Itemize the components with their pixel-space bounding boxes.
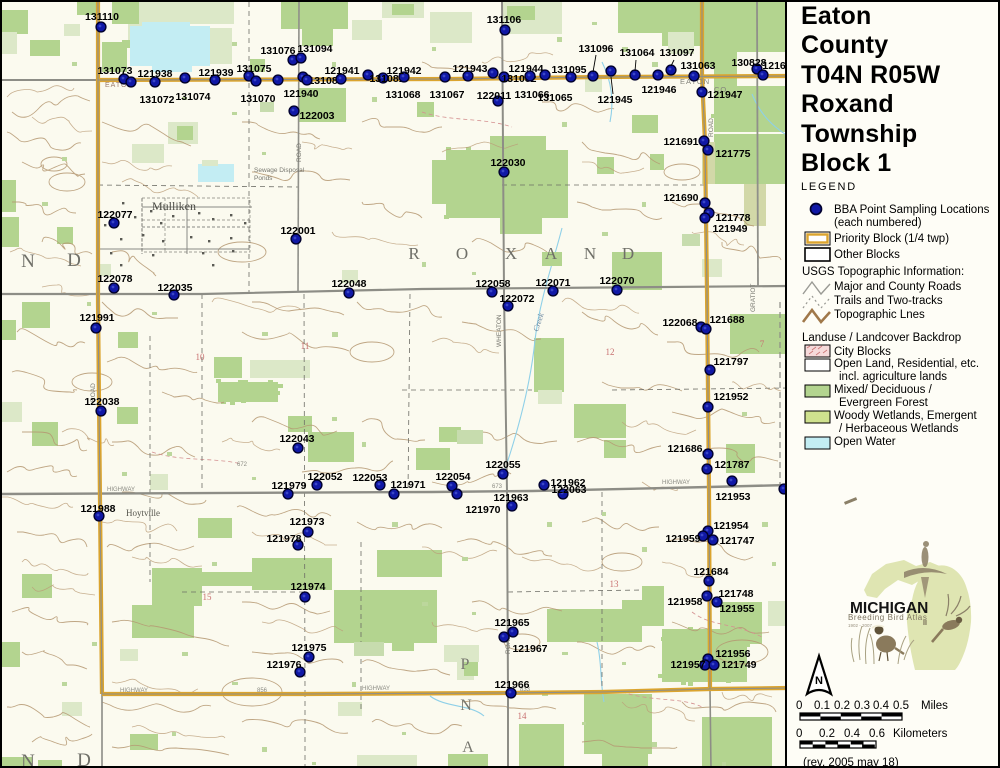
svg-text:121949: 121949 [712, 223, 747, 235]
svg-text:Evergreen Forest: Evergreen Forest [839, 397, 929, 409]
svg-text:N: N [815, 675, 823, 687]
svg-text:Other Blocks: Other Blocks [834, 249, 900, 261]
svg-text:673: 673 [492, 484, 503, 490]
svg-text:14: 14 [518, 711, 528, 721]
svg-text:D: D [622, 244, 634, 263]
svg-text:121775: 121775 [715, 148, 750, 160]
svg-text:A: A [545, 244, 558, 263]
svg-text:X: X [505, 244, 517, 263]
svg-text:Trails and Two-tracks: Trails and Two-tracks [834, 295, 943, 307]
svg-text:121955: 121955 [719, 603, 754, 615]
svg-text:Breeding Bird Atlas: Breeding Bird Atlas [848, 613, 927, 622]
svg-text:122078: 122078 [97, 273, 132, 285]
svg-text:D: D [77, 750, 91, 768]
svg-text:121684: 121684 [693, 566, 728, 578]
svg-text:122055: 122055 [485, 459, 520, 471]
svg-text:N: N [21, 251, 35, 272]
svg-text:131063: 131063 [680, 60, 715, 72]
svg-text:Major and County Roads: Major and County Roads [834, 281, 961, 293]
svg-text:Open Land, Residential, etc.: Open Land, Residential, etc. [834, 358, 979, 370]
svg-text:121947: 121947 [707, 89, 742, 101]
svg-text:131106: 131106 [487, 14, 522, 26]
svg-text:131096: 131096 [578, 43, 613, 55]
svg-text:131068: 131068 [385, 89, 420, 101]
svg-text:121970: 121970 [465, 504, 500, 516]
svg-text:121958: 121958 [667, 596, 702, 608]
svg-text:131067: 131067 [429, 89, 464, 101]
svg-text:122071: 122071 [535, 277, 570, 289]
svg-text:0.2: 0.2 [819, 728, 835, 740]
svg-text:121959: 121959 [665, 533, 700, 545]
svg-text:122077: 122077 [97, 209, 132, 221]
svg-text:0: 0 [796, 700, 802, 712]
svg-text:122054: 122054 [435, 471, 470, 483]
svg-text:D: D [67, 250, 81, 271]
svg-text:121978: 121978 [266, 533, 301, 545]
svg-text:10: 10 [196, 352, 206, 362]
svg-text:121939: 121939 [198, 67, 233, 79]
svg-text:ROAD: ROAD [708, 118, 715, 137]
svg-text:II: II [923, 620, 927, 627]
svg-text:incl. agriculture lands: incl. agriculture lands [839, 371, 947, 383]
svg-text:121938: 121938 [137, 68, 172, 80]
svg-text:HIGHWAY: HIGHWAY [107, 487, 135, 493]
svg-text:131070: 131070 [240, 93, 275, 105]
svg-text:121963: 121963 [493, 492, 528, 504]
svg-text:131072: 131072 [139, 94, 174, 106]
svg-text:0.3: 0.3 [854, 700, 870, 712]
svg-text:121748: 121748 [718, 588, 753, 600]
svg-text:131095: 131095 [551, 64, 586, 76]
svg-text:121957: 121957 [670, 659, 705, 671]
svg-text:0: 0 [796, 728, 802, 740]
svg-text:122001: 122001 [280, 225, 315, 237]
svg-text:122068: 122068 [662, 317, 697, 329]
svg-text:121747: 121747 [719, 535, 754, 547]
svg-text:122052: 122052 [307, 471, 342, 483]
svg-text:HIGHWAY: HIGHWAY [662, 480, 690, 486]
svg-text:131075: 131075 [236, 63, 271, 75]
svg-text:121686: 121686 [667, 443, 702, 455]
svg-text:O: O [456, 244, 468, 263]
svg-text:(each numbered): (each numbered) [834, 217, 922, 229]
svg-text:HIGHWAY: HIGHWAY [120, 688, 148, 694]
svg-text:122003: 122003 [299, 110, 334, 122]
svg-text:0.4: 0.4 [844, 728, 861, 740]
svg-text:121953: 121953 [715, 491, 750, 503]
svg-text:12: 12 [606, 347, 615, 357]
svg-text:Sewage Disposal: Sewage Disposal [254, 167, 305, 174]
svg-text:Woody Wetlands, Emergent: Woody Wetlands, Emergent [834, 410, 978, 422]
svg-text:122072: 122072 [499, 293, 534, 305]
svg-text:(rev. 2005 may 18): (rev. 2005 may 18) [803, 757, 899, 768]
svg-text:HIGHWAY: HIGHWAY [362, 686, 390, 692]
svg-text:1902 - 2007: 1902 - 2007 [848, 623, 873, 628]
svg-text:0.5: 0.5 [893, 700, 909, 712]
svg-text:0.4: 0.4 [873, 700, 890, 712]
svg-text:Hoytville: Hoytville [126, 508, 160, 518]
svg-text:121942: 121942 [386, 65, 421, 77]
svg-text:R: R [408, 244, 420, 263]
svg-text:City Blocks: City Blocks [834, 346, 891, 358]
svg-text:131074: 131074 [175, 91, 210, 103]
svg-text:Kilometers: Kilometers [893, 728, 948, 740]
svg-text:121976: 121976 [266, 659, 301, 671]
svg-text:121971: 121971 [390, 479, 425, 491]
svg-text:122035: 122035 [157, 282, 192, 294]
svg-text:USGS Topographic Information:: USGS Topographic Information: [802, 266, 964, 278]
svg-text:N: N [21, 751, 35, 768]
svg-text:131073: 131073 [97, 65, 132, 77]
svg-text:Mulliken: Mulliken [152, 199, 196, 213]
svg-text:672: 672 [237, 462, 248, 468]
svg-text:121787: 121787 [714, 459, 749, 471]
svg-text:122030: 122030 [490, 157, 525, 169]
svg-text:Priority Block (1/4 twp): Priority Block (1/4 twp) [834, 233, 949, 245]
svg-text:Mixed/ Deciduous /: Mixed/ Deciduous / [834, 384, 933, 396]
svg-text:122038: 122038 [84, 396, 119, 408]
svg-text:130828: 130828 [731, 57, 766, 69]
svg-text:GRATIOT: GRATIOT [750, 284, 757, 312]
svg-text:121946: 121946 [641, 84, 676, 96]
svg-text:11: 11 [301, 341, 310, 351]
svg-text:Ponds: Ponds [254, 175, 273, 182]
svg-text:131076: 131076 [260, 45, 295, 57]
svg-text:0.1: 0.1 [814, 700, 830, 712]
svg-text:122011: 122011 [477, 90, 512, 102]
svg-text:121952: 121952 [713, 391, 748, 403]
svg-text:P: P [461, 656, 470, 673]
svg-text:121940: 121940 [283, 88, 318, 100]
svg-text:121973: 121973 [289, 516, 324, 528]
svg-text:121988: 121988 [80, 503, 115, 515]
svg-text:N: N [460, 697, 472, 714]
svg-text:0.6: 0.6 [869, 728, 885, 740]
svg-text:131110: 131110 [85, 11, 119, 23]
svg-text:Landuse / Landcover Backdrop: Landuse / Landcover Backdrop [802, 332, 961, 344]
svg-text:121688: 121688 [709, 314, 744, 326]
svg-text:121967: 121967 [512, 643, 547, 655]
svg-text:121966: 121966 [494, 679, 529, 691]
svg-text:122070: 122070 [599, 275, 634, 287]
svg-text:121797: 121797 [713, 356, 748, 368]
svg-text:0.2: 0.2 [834, 700, 850, 712]
svg-text:121991: 121991 [79, 312, 114, 324]
svg-text:121979: 121979 [271, 480, 306, 492]
svg-text:121691: 121691 [663, 136, 698, 148]
svg-text:N: N [584, 244, 596, 263]
svg-text:Topographic Lnes: Topographic Lnes [834, 309, 925, 321]
svg-text:122063: 122063 [551, 484, 586, 496]
svg-text:15: 15 [203, 592, 213, 602]
svg-text:ROAD: ROAD [296, 143, 303, 162]
svg-text:121941: 121941 [324, 65, 359, 77]
svg-text:121965: 121965 [494, 617, 529, 629]
svg-text:121974: 121974 [290, 581, 325, 593]
svg-text:WHEATON: WHEATON [496, 314, 503, 347]
svg-text:Miles: Miles [921, 700, 948, 712]
svg-text:122048: 122048 [331, 278, 366, 290]
svg-text:Open Water: Open Water [834, 436, 896, 448]
svg-text:122058: 122058 [475, 278, 510, 290]
svg-text:131064: 131064 [619, 47, 654, 59]
svg-text:856: 856 [257, 688, 268, 694]
svg-text:121975: 121975 [291, 642, 326, 654]
svg-text:121749: 121749 [721, 659, 756, 671]
svg-text:121945: 121945 [597, 94, 632, 106]
svg-text:A: A [462, 739, 474, 756]
svg-text:131094: 131094 [297, 43, 332, 55]
svg-text:13: 13 [610, 579, 620, 589]
svg-text:121943: 121943 [452, 63, 487, 75]
svg-text:BBA Point Sampling Locations: BBA Point Sampling Locations [834, 204, 990, 216]
svg-text:131065: 131065 [537, 92, 572, 104]
svg-text:121954: 121954 [713, 520, 748, 532]
svg-text:122043: 122043 [279, 433, 314, 445]
svg-text:121690: 121690 [663, 192, 698, 204]
svg-text:122053: 122053 [352, 472, 387, 484]
svg-text:/ Herbaceous Wetlands: / Herbaceous Wetlands [839, 423, 959, 435]
svg-text:131097: 131097 [659, 47, 694, 59]
svg-text:7: 7 [760, 339, 765, 349]
